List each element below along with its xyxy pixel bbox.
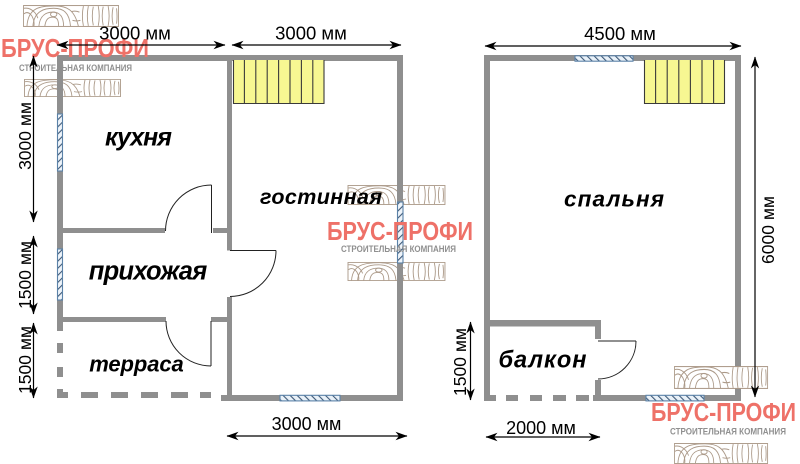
svg-text:1500 мм: 1500 мм (450, 328, 470, 396)
svg-text:3000 мм: 3000 мм (272, 414, 342, 434)
svg-text:гостинная: гостинная (260, 185, 382, 209)
svg-text:3000 мм: 3000 мм (275, 23, 347, 44)
svg-text:спальня: спальня (564, 187, 664, 212)
svg-text:СТРОИТЕЛЬНАЯ КОМПАНИЯ: СТРОИТЕЛЬНАЯ КОМПАНИЯ (670, 427, 786, 438)
svg-text:прихожая: прихожая (89, 258, 208, 286)
svg-text:СТРОИТЕЛЬНАЯ КОМПАНИЯ: СТРОИТЕЛЬНАЯ КОМПАНИЯ (341, 244, 456, 255)
svg-text:4500 мм: 4500 мм (584, 23, 656, 44)
svg-text:3000 мм: 3000 мм (99, 23, 171, 44)
svg-text:балкон: балкон (499, 348, 587, 374)
svg-text:2000 мм: 2000 мм (506, 418, 576, 438)
svg-text:БРУС-ПРОФИ: БРУС-ПРОФИ (327, 216, 473, 246)
svg-text:1500 мм: 1500 мм (15, 241, 35, 309)
svg-text:1500 мм: 1500 мм (15, 326, 35, 394)
svg-text:6000 мм: 6000 мм (758, 196, 778, 264)
svg-text:БРУС-ПРОФИ: БРУС-ПРОФИ (651, 397, 796, 427)
svg-text:терраса: терраса (89, 352, 184, 377)
svg-text:кухня: кухня (105, 124, 172, 152)
svg-text:СТРОИТЕЛЬНАЯ КОМПАНИЯ: СТРОИТЕЛЬНАЯ КОМПАНИЯ (19, 63, 132, 74)
svg-text:3000 мм: 3000 мм (15, 102, 35, 170)
